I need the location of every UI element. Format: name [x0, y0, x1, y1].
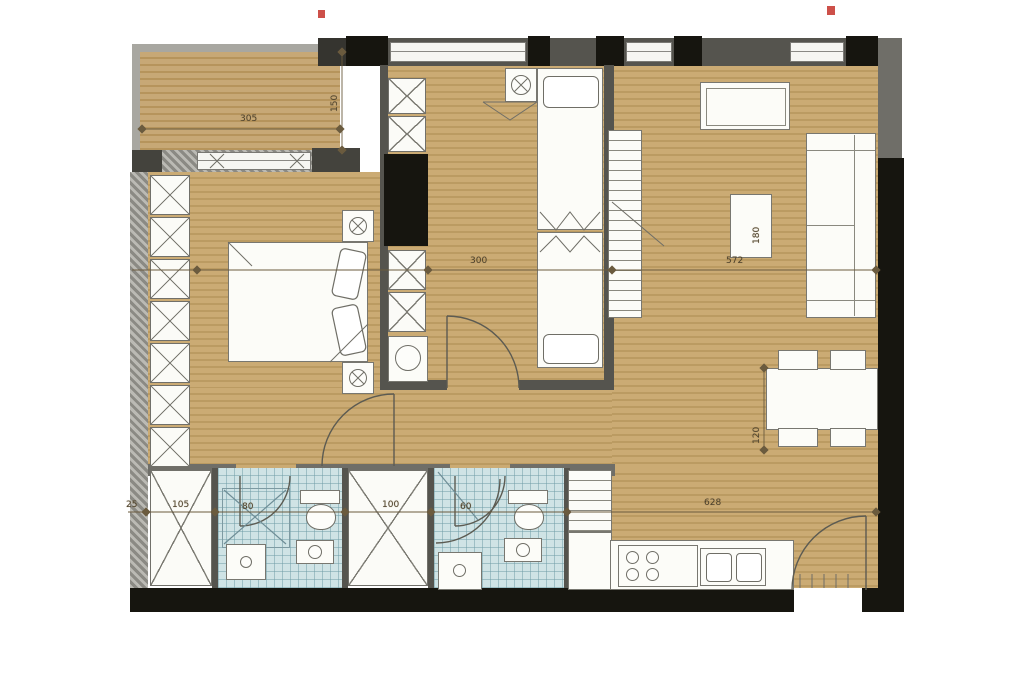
- dim-marker: [872, 508, 880, 516]
- dim-marker: [138, 125, 146, 133]
- dim-bedroom-width: 300: [470, 256, 487, 266]
- dim-marker: [760, 364, 768, 372]
- dim-left-wall: 25: [126, 500, 137, 510]
- dim-marker: [760, 446, 768, 454]
- dim-kitchen-run: 628: [704, 498, 721, 508]
- dim-marker: [563, 508, 571, 516]
- dim-closet-2: 100: [382, 500, 399, 510]
- dim-marker: [193, 266, 201, 274]
- dim-balcony-width: 305: [240, 114, 257, 124]
- blanket-fold: [228, 242, 252, 266]
- dim-marker: [211, 508, 219, 516]
- blanket-zigzag: [540, 212, 600, 230]
- plan-linework: [0, 0, 1024, 678]
- dim-bathroom-1: 80: [242, 502, 253, 512]
- entrance-door-arc: [792, 516, 866, 590]
- shower-2-mark: [438, 472, 478, 520]
- bathroom-1-door-arc: [240, 476, 290, 526]
- dim-marker: [424, 266, 432, 274]
- dim-media-unit: 180: [752, 227, 762, 244]
- dim-marker: [341, 508, 349, 516]
- lamp-cross: [352, 372, 364, 384]
- pillow: [331, 248, 366, 300]
- threshold-ticks: [800, 574, 848, 588]
- blanket-zigzag: [540, 236, 600, 252]
- dim-marker: [142, 508, 150, 516]
- dim-marker: [608, 266, 616, 274]
- bedroom-door-arc: [322, 394, 394, 466]
- dim-bathroom-2: 60: [460, 502, 471, 512]
- dim-marker: [338, 146, 346, 154]
- window-ticks: [210, 154, 304, 168]
- fan-cross: [514, 78, 528, 92]
- dim-marker: [427, 508, 435, 516]
- dim-marker: [336, 125, 344, 133]
- leader-line: [612, 202, 664, 246]
- lamp-cross: [352, 220, 364, 232]
- dim-marker: [872, 266, 880, 274]
- middle-room-door-arc: [447, 316, 519, 388]
- dim-balcony-depth: 150: [330, 95, 340, 112]
- dim-living-width: 572: [726, 256, 743, 266]
- dim-closet-1: 105: [172, 500, 189, 510]
- floor-plan: 305 150 300 572 180 120 25 105 80 100 60…: [0, 0, 1024, 678]
- dim-dining-clearance: 120: [752, 427, 762, 444]
- bed-head-mark: [483, 102, 537, 120]
- dim-marker: [338, 48, 346, 56]
